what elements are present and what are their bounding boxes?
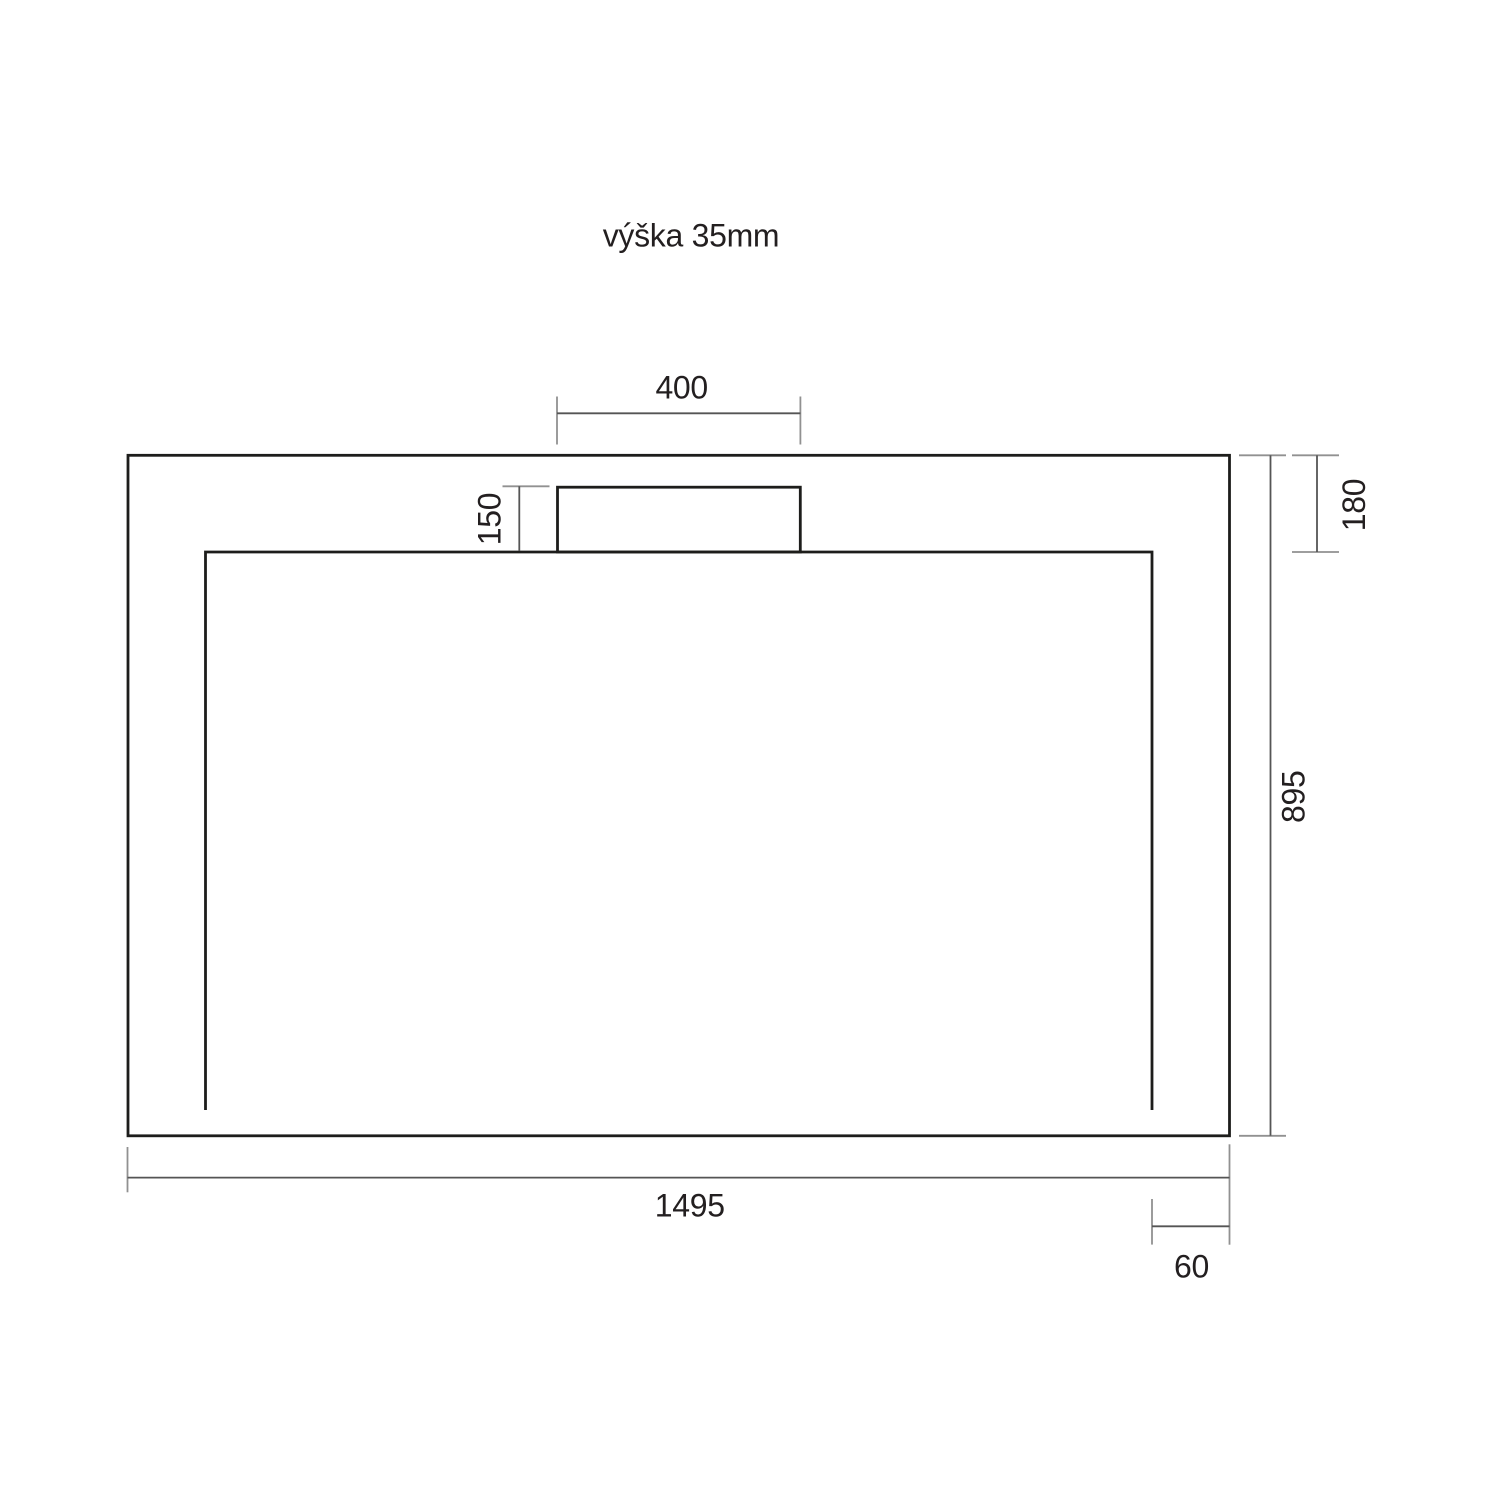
svg-text:400: 400 <box>655 369 708 405</box>
svg-text:60: 60 <box>1174 1248 1209 1284</box>
svg-text:výška 35mm: výška 35mm <box>603 218 780 254</box>
svg-text:180: 180 <box>1336 479 1372 532</box>
svg-text:150: 150 <box>472 493 508 546</box>
svg-text:1495: 1495 <box>655 1188 725 1224</box>
svg-text:895: 895 <box>1276 770 1312 823</box>
